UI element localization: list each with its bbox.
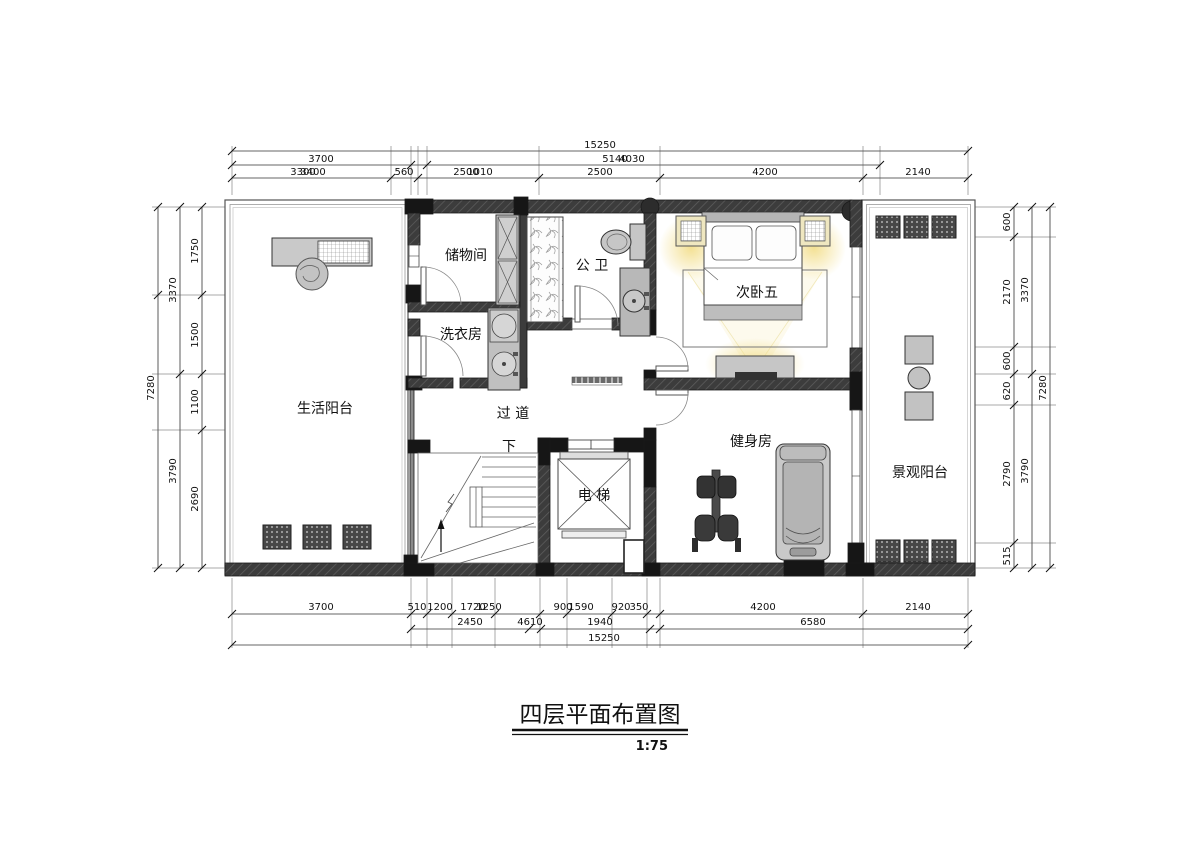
dim-label: 1590 [568, 602, 593, 613]
outdoor-chair [905, 336, 933, 364]
dim-label: 3700 [308, 602, 333, 613]
dim-label: 1750 [190, 238, 201, 263]
gym-equipment [692, 444, 830, 560]
weight-machine [692, 470, 741, 552]
drawing-scale: 1:75 [636, 739, 668, 754]
dim-label: 1200 [427, 602, 452, 613]
outdoor-chair [905, 392, 933, 420]
floor-mat [572, 377, 622, 385]
planter-box [876, 216, 900, 238]
dimensions-right: 600 2170 600 620 2790 515 3370 3790 7280 [1002, 212, 1049, 565]
gym-door [656, 390, 688, 425]
dim-label: 4030 [619, 154, 644, 165]
dim-label: 6580 [800, 617, 825, 628]
dim-label: 3370 [168, 277, 179, 302]
pillow [756, 226, 796, 260]
dim-label: 620 [1002, 381, 1013, 400]
dim-label: 2500 [587, 167, 612, 178]
drawing-title: 四层平面布置图 [520, 702, 681, 728]
dim-label: 15250 [588, 633, 620, 644]
dim-label: 1010 [467, 167, 492, 178]
dim-label: 7280 [1038, 375, 1049, 400]
pillow [712, 226, 752, 260]
storage-wardrobe [496, 215, 519, 305]
floor-plan-page: 生活阳台 储物间 洗衣房 公 卫 次卧五 过 道 下 电 梯 健身房 景观阳台 … [0, 0, 1200, 842]
dim-label: 1100 [190, 389, 201, 414]
dim-label: 2450 [457, 617, 482, 628]
dim-label: 2690 [190, 486, 201, 511]
dim-label: 4200 [752, 167, 777, 178]
balcony-counter-grid [318, 241, 369, 263]
dim-label: 1940 [587, 617, 612, 628]
planter-box [904, 540, 928, 562]
dim-label: 2140 [905, 602, 930, 613]
dim-label: 600 [1002, 212, 1013, 231]
room-label-view-balcony: 景观阳台 [892, 465, 948, 481]
dim-label: 3400 [300, 167, 325, 178]
room-label-stairs-down: 下 [502, 439, 516, 455]
dim-label: 560 [394, 167, 413, 178]
dim-label: 4610 [517, 617, 542, 628]
dim-label: 2140 [905, 167, 930, 178]
room-label-storage: 储物间 [445, 248, 487, 264]
dim-label: 1250 [476, 602, 501, 613]
staircase [418, 453, 538, 563]
floor-plan-drawing: 生活阳台 储物间 洗衣房 公 卫 次卧五 过 道 下 电 梯 健身房 景观阳台 … [0, 0, 1200, 842]
planter-box [932, 216, 956, 238]
dim-label: 2790 [1002, 461, 1013, 486]
shower-panel [527, 217, 563, 322]
planter-box [876, 540, 900, 562]
laundry-fixtures [488, 308, 520, 390]
room-label-elevator: 电 梯 [578, 488, 610, 504]
dim-label: 1500 [190, 322, 201, 347]
outdoor-table [908, 367, 930, 389]
elevator [558, 440, 644, 573]
storage-door [421, 267, 461, 305]
bathroom-vanity [620, 268, 650, 336]
dim-label: 350 [629, 602, 648, 613]
treadmill [776, 444, 830, 560]
dimensions-top: 15250 3700 5140 4030 3300 3400 560 2500 … [290, 140, 930, 178]
dimensions-left: 7280 3370 3790 1750 1500 1100 2690 [146, 238, 201, 511]
planter-box [932, 540, 956, 562]
room-label-gym: 健身房 [730, 434, 772, 450]
dim-label: 4200 [750, 602, 775, 613]
planter-box [263, 525, 291, 549]
room-label-laundry: 洗衣房 [440, 327, 482, 343]
planter-box [303, 525, 331, 549]
dim-label: 515 [1002, 546, 1013, 565]
room-label-bedroom5: 次卧五 [736, 285, 778, 301]
dim-label: 3790 [1020, 458, 1031, 483]
dimensions-bottom: 3700 510 1200 1720 1250 900 1590 920 350… [308, 602, 930, 644]
room-label-life-balcony: 生活阳台 [297, 401, 353, 417]
dim-label: 920 [611, 602, 630, 613]
dim-label: 3370 [1020, 277, 1031, 302]
planter-box [904, 216, 928, 238]
dim-label: 510 [407, 602, 426, 613]
dim-label: 15250 [584, 140, 616, 151]
dim-label: 2170 [1002, 279, 1013, 304]
dim-label: 7280 [146, 375, 157, 400]
headboard [702, 212, 804, 222]
tv [735, 372, 777, 380]
potted-plant [296, 258, 328, 290]
dim-label: 3790 [168, 458, 179, 483]
shaft-access-door [624, 540, 644, 573]
room-label-bath: 公 卫 [576, 258, 608, 274]
dim-label: 600 [1002, 351, 1013, 370]
title-block: 四层平面布置图 1:75 [512, 702, 688, 754]
planter-box [343, 525, 371, 549]
dim-label: 3700 [308, 154, 333, 165]
toilet [601, 224, 646, 260]
right-balcony [862, 200, 975, 575]
room-label-hallway: 过 道 [497, 406, 529, 422]
left-balcony [225, 200, 408, 575]
